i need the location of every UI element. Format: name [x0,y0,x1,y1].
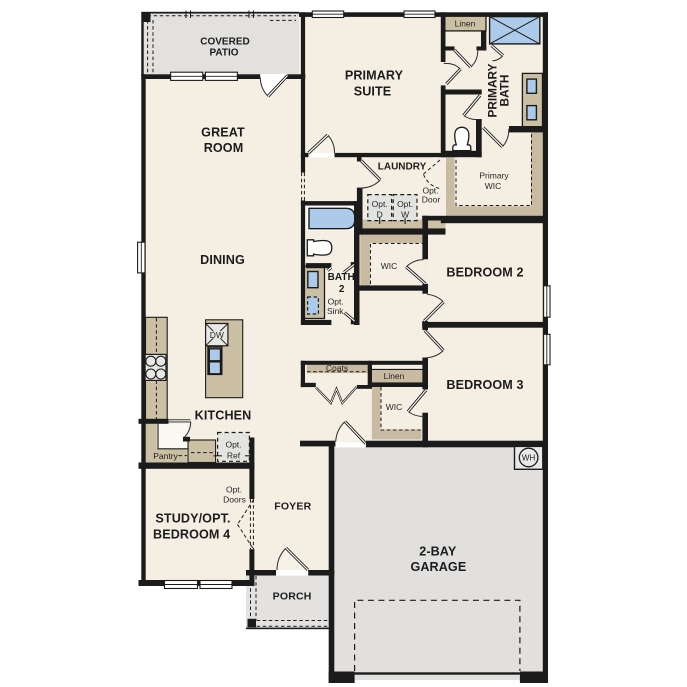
svg-text:WIC: WIC [386,402,403,412]
svg-text:STUDY/OPT.: STUDY/OPT. [155,512,230,526]
svg-text:Linen: Linen [455,19,476,29]
svg-text:DW: DW [210,330,224,340]
svg-text:ROOM: ROOM [204,141,244,155]
svg-text:KITCHEN: KITCHEN [195,409,252,423]
svg-text:2: 2 [339,284,345,295]
svg-text:Opt.: Opt. [372,199,388,209]
svg-text:WIC: WIC [381,261,398,271]
svg-text:SUITE: SUITE [354,85,392,99]
svg-text:WIC: WIC [485,181,502,191]
svg-text:Opt.: Opt. [328,296,344,306]
svg-text:2-BAY: 2-BAY [419,544,457,558]
svg-text:Primary: Primary [479,171,509,181]
svg-text:PORCH: PORCH [273,591,312,603]
svg-text:Opt.: Opt. [226,485,242,495]
svg-text:COVERED: COVERED [200,37,249,48]
svg-text:GREAT: GREAT [201,126,245,140]
svg-text:FOYER: FOYER [274,501,311,513]
svg-text:Sink: Sink [327,306,344,316]
svg-text:GARAGE: GARAGE [410,560,466,574]
svg-text:DINING: DINING [200,253,245,267]
svg-text:BEDROOM 3: BEDROOM 3 [446,378,523,392]
svg-text:LAUNDRY: LAUNDRY [378,161,427,172]
svg-text:Doors: Doors [223,495,246,505]
svg-text:PATIO: PATIO [209,48,238,59]
svg-text:PRIMARY: PRIMARY [345,69,404,83]
svg-text:BEDROOM 4: BEDROOM 4 [153,528,230,542]
svg-text:Pantry: Pantry [153,451,178,461]
svg-text:Linen: Linen [384,371,405,381]
svg-text:BATH: BATH [328,272,355,283]
svg-text:Ref: Ref [227,451,241,461]
svg-text:BEDROOM 2: BEDROOM 2 [446,265,523,279]
svg-text:BATH: BATH [498,75,512,107]
svg-text:WH: WH [522,454,536,463]
svg-text:Door: Door [422,195,441,205]
svg-text:Opt.: Opt. [397,199,413,209]
svg-text:Opt.: Opt. [225,439,241,449]
